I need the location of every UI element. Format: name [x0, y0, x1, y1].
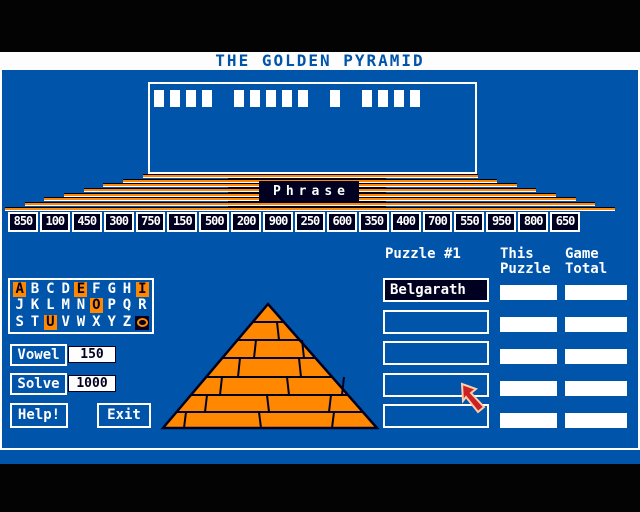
game-total-header: Game Total	[565, 247, 607, 277]
money-cell: 950	[486, 212, 516, 232]
game-total-score-4	[565, 381, 627, 396]
letter-I[interactable]: I	[136, 282, 149, 297]
letter-B[interactable]: B	[28, 282, 41, 297]
phrase-tile	[266, 90, 276, 107]
letter-M[interactable]: M	[59, 298, 72, 313]
puzzle-slot-4	[383, 373, 489, 397]
letter-F[interactable]: F	[90, 282, 103, 297]
letter-W[interactable]: W	[74, 315, 87, 330]
ring-icon[interactable]	[135, 316, 149, 330]
puzzle-header: Puzzle #1	[385, 247, 461, 262]
letter-K[interactable]: K	[28, 298, 41, 313]
this-puzzle-header-line1: This	[500, 247, 551, 262]
tile-word-2	[234, 90, 308, 107]
phrase-tile	[186, 90, 196, 107]
ring-glyph	[137, 318, 148, 327]
this-puzzle-score-1	[500, 285, 557, 300]
letter-G[interactable]: G	[105, 282, 118, 297]
phrase-tiles	[154, 90, 420, 107]
phrase-tile	[154, 90, 164, 107]
phrase-tile	[410, 90, 420, 107]
money-cell: 750	[136, 212, 166, 232]
this-puzzle-header: This Puzzle	[500, 247, 551, 277]
letter-S[interactable]: S	[13, 315, 26, 330]
money-cell: 350	[359, 212, 389, 232]
phrase-tile	[170, 90, 180, 107]
letter-R[interactable]: R	[136, 298, 149, 313]
letter-Y[interactable]: Y	[105, 315, 118, 330]
vowel-cost-box: 150	[68, 346, 116, 363]
step-row-8	[5, 207, 615, 211]
game-total-score-1	[565, 285, 627, 300]
phrase-label: Phrase	[259, 181, 359, 203]
letter-V[interactable]: V	[59, 315, 72, 330]
money-cell: 300	[104, 212, 134, 232]
this-puzzle-score-4	[500, 381, 557, 396]
letter-H[interactable]: H	[120, 282, 133, 297]
money-cell: 100	[40, 212, 70, 232]
puzzle-slot-3	[383, 341, 489, 365]
this-puzzle-header-line2: Puzzle	[500, 262, 551, 277]
phrase-tile	[234, 90, 244, 107]
money-cell: 650	[550, 212, 580, 232]
money-cell: 500	[199, 212, 229, 232]
letter-J[interactable]: J	[13, 298, 26, 313]
letter-A[interactable]: A	[13, 282, 26, 297]
money-cell: 150	[167, 212, 197, 232]
phrase-tile	[282, 90, 292, 107]
tile-word-3	[330, 90, 340, 107]
phrase-tile	[330, 90, 340, 107]
money-cell: 900	[263, 212, 293, 232]
game-total-score-3	[565, 349, 627, 364]
phrase-tile	[250, 90, 260, 107]
phrase-tile	[394, 90, 404, 107]
alphabet-panel: ABCDEFGHIJKLMNOPQRSTUVWXYZ	[8, 278, 154, 334]
this-puzzle-score-2	[500, 317, 557, 332]
puzzle-slot-5	[383, 404, 489, 428]
letter-X[interactable]: X	[90, 315, 103, 330]
tile-word-1	[154, 90, 212, 107]
puzzle-slot-1: Belgarath	[383, 278, 489, 302]
money-cell: 200	[231, 212, 261, 232]
help-button[interactable]: Help!	[10, 403, 68, 428]
letter-Q[interactable]: Q	[120, 298, 133, 313]
phrase-tile	[362, 90, 372, 107]
vowel-button[interactable]: Vowel	[10, 344, 67, 366]
game-total-header-line1: Game	[565, 247, 607, 262]
money-cell: 600	[327, 212, 357, 232]
letter-P[interactable]: P	[105, 298, 118, 313]
solve-button[interactable]: Solve	[10, 373, 67, 395]
money-cell: 450	[72, 212, 102, 232]
phrase-tile	[378, 90, 388, 107]
game-total-score-2	[565, 317, 627, 332]
tile-word-4	[362, 90, 420, 107]
game-screen: THE GOLDEN PYRAMID Phrase 85010045030075…	[0, 0, 640, 512]
money-cell: 850	[8, 212, 38, 232]
letter-U[interactable]: U	[44, 315, 57, 330]
bottom-black-bar	[0, 464, 640, 512]
page-title: THE GOLDEN PYRAMID	[215, 51, 424, 70]
letter-Z[interactable]: Z	[120, 315, 133, 330]
title-bar: THE GOLDEN PYRAMID	[0, 52, 640, 70]
top-black-bar	[0, 0, 640, 52]
letter-C[interactable]: C	[44, 282, 57, 297]
money-cell: 700	[423, 212, 453, 232]
money-row: 8501004503007501505002009002506003504007…	[8, 212, 580, 232]
letter-N[interactable]: N	[74, 298, 87, 313]
phrase-tile	[202, 90, 212, 107]
game-total-header-line2: Total	[565, 262, 607, 277]
puzzle-slot-2	[383, 310, 489, 334]
money-cell: 400	[391, 212, 421, 232]
money-cell: 550	[454, 212, 484, 232]
money-cell: 800	[518, 212, 548, 232]
this-puzzle-score-3	[500, 349, 557, 364]
exit-button[interactable]: Exit	[97, 403, 151, 428]
this-puzzle-score-5	[500, 413, 557, 428]
solve-cost-box: 1000	[68, 375, 116, 392]
letter-D[interactable]: D	[59, 282, 72, 297]
letter-E[interactable]: E	[74, 282, 87, 297]
money-cell: 250	[295, 212, 325, 232]
game-total-score-5	[565, 413, 627, 428]
step-row-1	[143, 174, 478, 178]
letter-O[interactable]: O	[90, 298, 103, 313]
phrase-tile	[298, 90, 308, 107]
bottom-blue-strip	[0, 450, 640, 464]
letter-L[interactable]: L	[44, 298, 57, 313]
letter-T[interactable]: T	[28, 315, 41, 330]
